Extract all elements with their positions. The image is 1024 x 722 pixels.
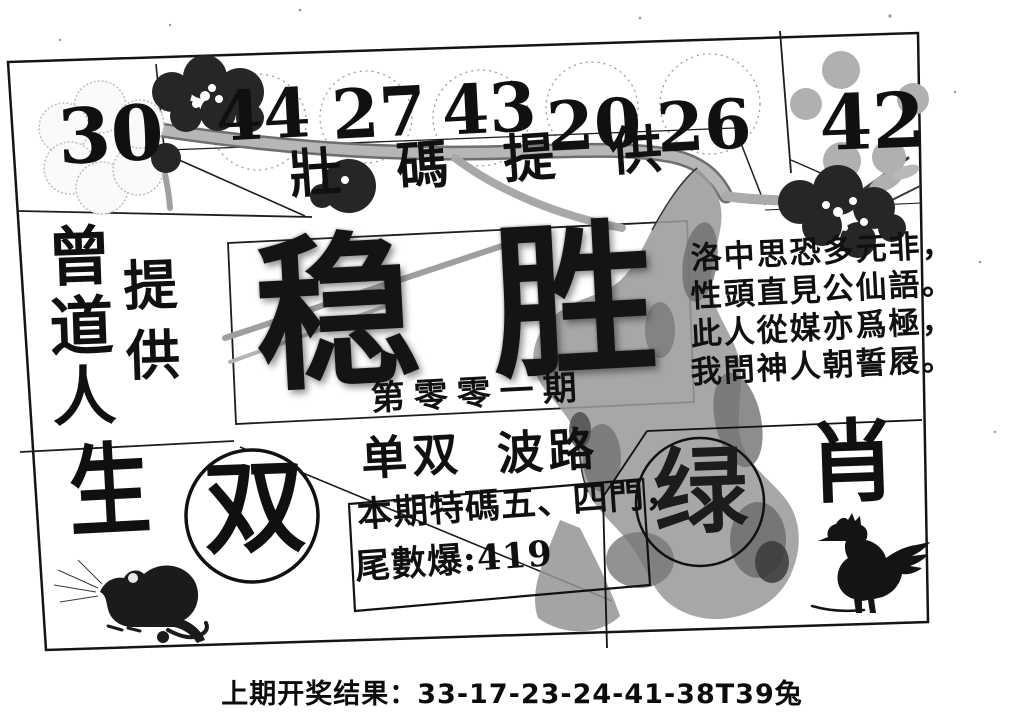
number-right: 42 xyxy=(818,82,926,162)
brand-big-char: 生 xyxy=(66,440,153,544)
number-left: 30 xyxy=(56,94,166,175)
lottery-tip-sheet: 30 44 27 43 20 26 42 壯碼提供 曾道人 提供 生 稳胜 第零… xyxy=(0,0,1024,722)
odd-even-pick: 双 xyxy=(202,456,307,561)
number-boxed-1: 44 xyxy=(214,79,312,152)
issue-label: 第零零一期 xyxy=(370,371,586,416)
odd-even-label: 单双 xyxy=(360,431,464,482)
previous-result-value: 33-17-23-24-41-38T39兔 xyxy=(417,679,802,710)
previous-result-line: 上期开奖结果：33-17-23-24-41-38T39兔 xyxy=(0,672,1024,711)
brand-suffix: 提供 xyxy=(118,256,177,398)
wave-label: 波路 xyxy=(496,426,600,477)
previous-result-label: 上期开奖结果： xyxy=(221,679,417,710)
brand-name: 曾道人 xyxy=(40,222,111,434)
zodiac-label: 肖 xyxy=(806,417,899,510)
